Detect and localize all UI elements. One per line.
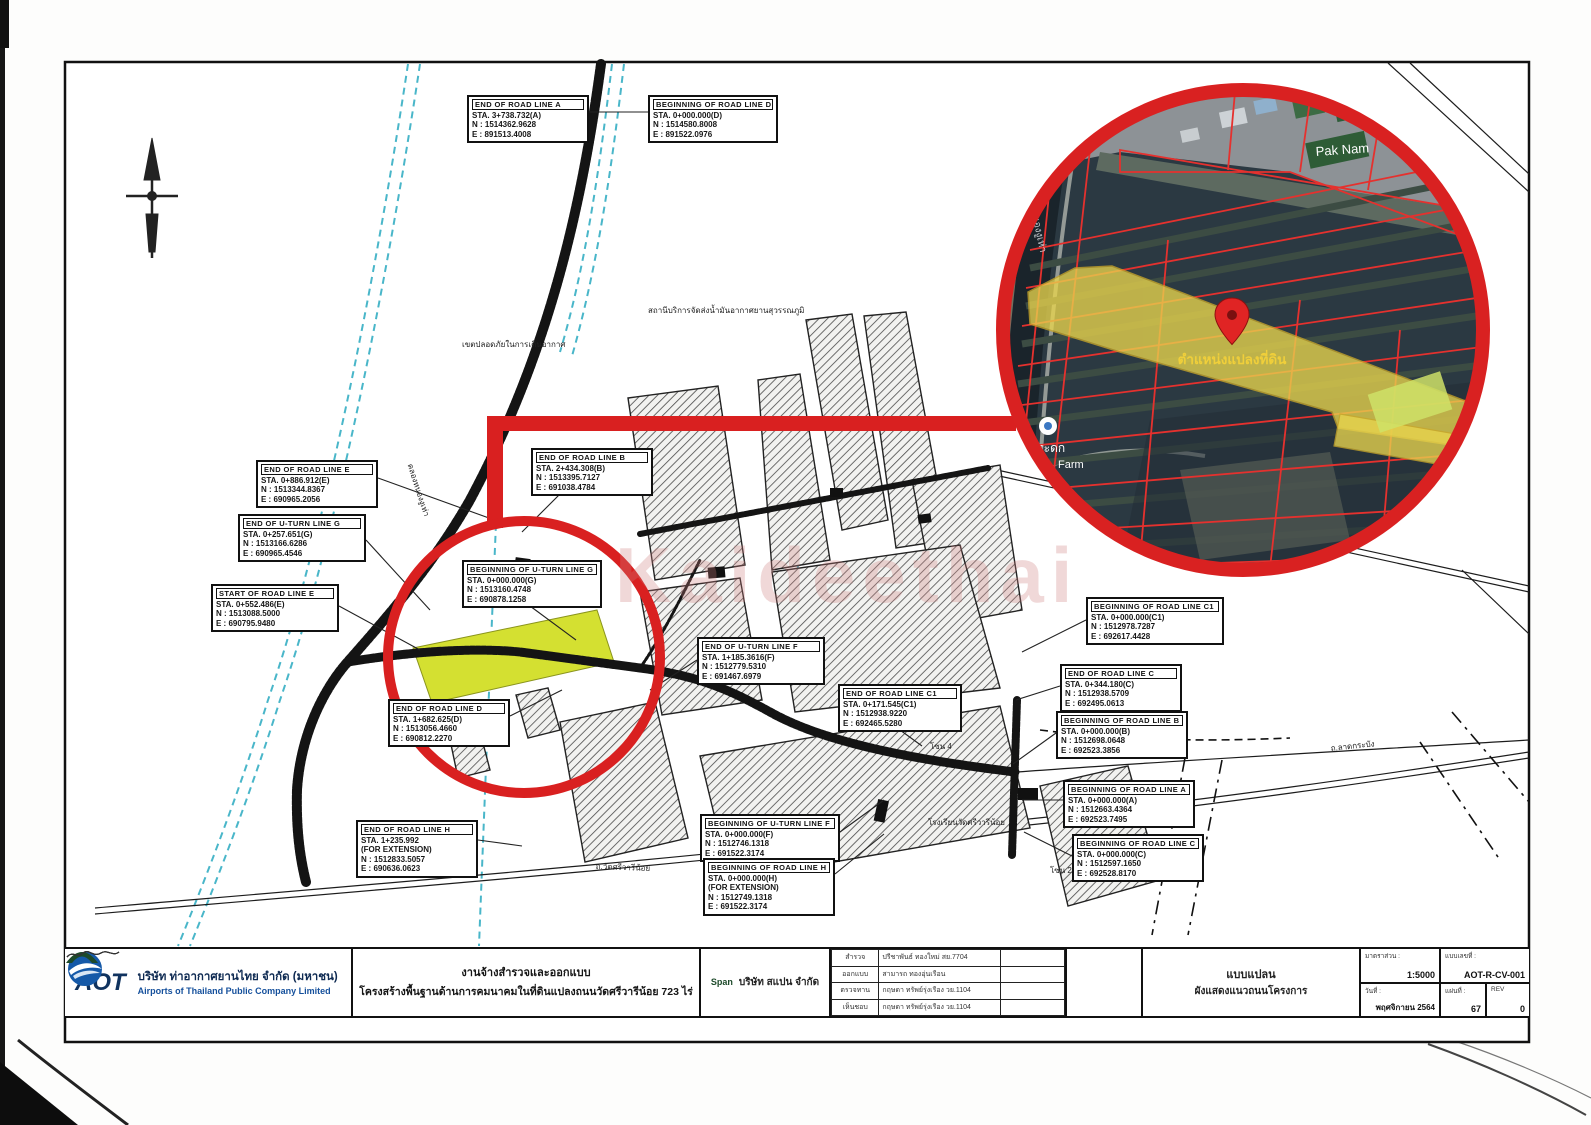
coord-label-title: END OF U-TURN LINE F — [702, 641, 820, 652]
map-annotation-4: โรงเรียนวัดศรีวารีน้อย — [928, 816, 1005, 829]
coord-label-line: STA. 0+886.912(E) — [261, 476, 373, 485]
drawing-info-grid: มาตราส่วน : 1:5000 แบบเลขที่ : AOT-R-CV-… — [1361, 949, 1529, 1016]
coord-label-1: BEGINNING OF ROAD LINE DSTA. 0+000.000(D… — [648, 95, 778, 143]
coord-label-line: N : 1512938.5709 — [1065, 689, 1177, 698]
coord-label-line: STA. 0+000.000(B) — [1061, 727, 1183, 736]
coord-label-line: E : 692495.0613 — [1065, 699, 1177, 708]
coord-label-0: END OF ROAD LINE ASTA. 3+738.732(A)N : 1… — [467, 95, 589, 143]
coord-label-line: STA. 0+000.000(A) — [1068, 796, 1190, 805]
coord-label-line: STA. 0+171.545(C1) — [843, 700, 957, 709]
coord-label-line: E : 691038.4784 — [536, 483, 648, 492]
coord-label-line: (FOR EXTENSION) — [361, 845, 473, 854]
coord-label-line: N : 1514580.8008 — [653, 120, 773, 129]
dwg-no-label: แบบเลขที่ : — [1445, 951, 1525, 961]
coord-label-line: N : 1514362.9628 — [472, 120, 584, 129]
date-value: พฤศจิกายน 2564 — [1365, 1001, 1435, 1014]
coord-label-title: BEGINNING OF ROAD LINE B — [1061, 715, 1183, 726]
coord-label-line: STA. 0+000.000(C1) — [1091, 613, 1219, 622]
coord-label-line: STA. 0+000.000(G) — [467, 576, 597, 585]
sheet-label: แผ่นที่ : — [1445, 986, 1481, 996]
coord-label-line: E : 691522.3174 — [705, 849, 835, 858]
consultant-cell: Span บริษัท สแปน จำกัด — [701, 949, 831, 1016]
coord-label-8: END OF ROAD LINE C1STA. 0+171.545(C1)N :… — [838, 684, 962, 732]
coord-label-title: START OF ROAD LINE E — [216, 588, 334, 599]
coord-label-17: END OF ROAD LINE HSTA. 1+235.992(FOR EXT… — [356, 820, 478, 878]
coord-label-title: BEGINNING OF ROAD LINE C — [1077, 838, 1199, 849]
coord-label-9: BEGINNING OF ROAD LINE C1STA. 0+000.000(… — [1086, 597, 1224, 645]
project-title-cell: งานจ้างสำรวจและออกแบบ โครงสร้างพื้นฐานด้… — [353, 949, 701, 1016]
scan-page-curl — [1428, 1044, 1586, 1115]
coord-label-2: END OF ROAD LINE ESTA. 0+886.912(E)N : 1… — [256, 460, 378, 508]
signature-table-cell: สำรวจปรีชาพันธ์ ทองใหม่ สย.7704ออกแบบสาม… — [831, 949, 1067, 1016]
coord-label-7: END OF U-TURN LINE FSTA. 1+185.3616(F)N … — [697, 637, 825, 685]
coord-label-14: END OF ROAD LINE DSTA. 1+682.625(D)N : 1… — [388, 699, 510, 747]
coord-label-10: END OF ROAD LINE CSTA. 0+344.180(C)N : 1… — [1060, 664, 1182, 712]
coord-label-line: N : 1513395.7127 — [536, 473, 648, 482]
coord-label-line: E : 690878.1258 — [467, 595, 597, 604]
company-name-th: บริษัท ท่าอากาศยานไทย จำกัด (มหาชน) — [138, 969, 338, 986]
coord-label-line: STA. 1+235.992 — [361, 836, 473, 845]
inset-pin-label: ตำแหน่งแปลงที่ดิน — [1178, 349, 1288, 367]
coord-label-13: BEGINNING OF ROAD LINE CSTA. 0+000.000(C… — [1072, 834, 1204, 882]
coord-label-line: E : 692465.5280 — [843, 719, 957, 728]
coord-label-line: STA. 0+000.000(F) — [705, 830, 835, 839]
drawing-title-line1: แบบแปลน — [1143, 966, 1359, 985]
signature-table: สำรวจปรีชาพันธ์ ทองใหม่ สย.7704ออกแบบสาม… — [831, 949, 1065, 1016]
coord-label-line: N : 1512779.5310 — [702, 662, 820, 671]
coord-label-line: N : 1512938.9220 — [843, 709, 957, 718]
coord-label-line: E : 690812.2270 — [393, 734, 505, 743]
title-block: AOT บริษัท ท่าอากาศยานไทย จำกัด (มหาชน) … — [65, 947, 1529, 1018]
project-title-line2: โครงสร้างพื้นฐานด้านการคมนาคมในที่ดินแปล… — [353, 983, 699, 1000]
coord-label-5: START OF ROAD LINE ESTA. 0+552.486(E)N :… — [211, 584, 339, 632]
map-annotation-3: ถ.วัดศรีวารีน้อย — [596, 860, 651, 875]
map-annotation-1: เขตปลอดภัยในการเดินอากาศ — [462, 338, 565, 351]
coord-label-line: STA. 2+434.308(B) — [536, 464, 648, 473]
signature-role: สำรวจ — [832, 950, 879, 967]
signature-scribble — [1000, 999, 1064, 1016]
coord-label-3: END OF ROAD LINE BSTA. 2+434.308(B)N : 1… — [531, 448, 653, 496]
coord-label-line: E : 692617.4428 — [1091, 632, 1219, 641]
drawing-title-line2: ผังแสดงแนวถนนโครงการ — [1143, 984, 1359, 999]
coord-label-line: STA. 1+682.625(D) — [393, 715, 505, 724]
coord-label-title: END OF ROAD LINE A — [472, 99, 584, 110]
coord-label-title: END OF ROAD LINE C1 — [843, 688, 957, 699]
coord-label-line: E : 692528.8170 — [1077, 869, 1199, 878]
coord-label-4: END OF U-TURN LINE GSTA. 0+257.651(G)N :… — [238, 514, 366, 562]
coord-label-title: BEGINNING OF ROAD LINE C1 — [1091, 601, 1219, 612]
signature-name: สามารถ ทองอุ่นเรือน — [879, 966, 1000, 983]
signature-role: เห็นชอบ — [832, 999, 879, 1016]
coord-label-line: STA. 0+552.486(E) — [216, 600, 334, 609]
rev-value: 0 — [1491, 1004, 1525, 1014]
coord-label-line: E : 692523.7495 — [1068, 815, 1190, 824]
coord-label-line: E : 891513.4008 — [472, 130, 584, 139]
coord-label-line: STA. 0+000.000(H) — [708, 874, 830, 883]
coord-label-title: BEGINNING OF ROAD LINE H — [708, 862, 830, 873]
company-name-en: Airports of Thailand Public Company Limi… — [138, 986, 338, 996]
coord-label-title: END OF ROAD LINE B — [536, 452, 648, 463]
coord-label-16: BEGINNING OF ROAD LINE HSTA. 0+000.000(H… — [703, 858, 835, 916]
coord-label-title: BEGINNING OF U-TURN LINE G — [467, 564, 597, 575]
coord-label-line: N : 1512978.7287 — [1091, 622, 1219, 631]
coord-label-line: STA. 0+000.000(D) — [653, 111, 773, 120]
coord-label-line: N : 1513344.8367 — [261, 485, 373, 494]
span-logo-text: Span — [711, 977, 733, 987]
project-title-line1: งานจ้างสำรวจและออกแบบ — [353, 965, 699, 983]
signature-scribble — [1000, 983, 1064, 1000]
coord-label-line: N : 1513166.6286 — [243, 539, 361, 548]
signature-row-0: สำรวจปรีชาพันธ์ ทองใหม่ สย.7704 — [832, 950, 1065, 967]
coord-label-line: E : 690965.2056 — [261, 495, 373, 504]
coord-label-line: E : 691467.6979 — [702, 672, 820, 681]
coord-label-title: BEGINNING OF U-TURN LINE F — [705, 818, 835, 829]
coord-label-line: E : 691522.3174 — [708, 902, 830, 911]
coord-label-title: BEGINNING OF ROAD LINE D — [653, 99, 773, 110]
coord-label-line: N : 1512663.4364 — [1068, 805, 1190, 814]
signature-row-2: ตรวจทานกฤษดา ทรัพย์รุ่งเรือง วย.1104 — [832, 983, 1065, 1000]
coord-label-line: N : 1512698.0648 — [1061, 736, 1183, 745]
coord-label-line: E : 690965.4546 — [243, 549, 361, 558]
signature-name: กฤษดา ทรัพย์รุ่งเรือง วย.1104 — [879, 983, 1000, 1000]
scale-label: มาตราส่วน : — [1365, 951, 1435, 961]
coord-label-line: STA. 0+344.180(C) — [1065, 680, 1177, 689]
inset-farm-label-2: Farm — [1058, 459, 1084, 471]
coord-label-line: E : 690636.0623 — [361, 864, 473, 873]
rev-label: REV — [1491, 986, 1525, 993]
coord-label-line: N : 1513056.4660 — [393, 724, 505, 733]
coord-label-line: N : 1513160.4748 — [467, 585, 597, 594]
signature-row-1: ออกแบบสามารถ ทองอุ่นเรือน — [832, 966, 1065, 983]
map-annotation-6: โซน 4 — [930, 740, 952, 753]
stamp-cell — [1067, 949, 1143, 1016]
coord-label-line: N : 1512597.1650 — [1077, 859, 1199, 868]
coord-label-title: END OF U-TURN LINE G — [243, 518, 361, 529]
signature-role: ตรวจทาน — [832, 983, 879, 1000]
scanned-drawing-sheet: คลองหนองงูเห่า Pak Nam ตำแหน่งแปลงที่ดิน… — [0, 0, 1591, 1125]
coord-label-line: E : 891522.0976 — [653, 130, 773, 139]
drawing-title-cell: แบบแปลน ผังแสดงแนวถนนโครงการ — [1143, 949, 1361, 1016]
coord-label-line: N : 1512746.1318 — [705, 839, 835, 848]
scale-value: 1:5000 — [1365, 970, 1435, 980]
consultant-name: บริษัท สแปน จำกัด — [739, 975, 819, 990]
date-label: วันที่ : — [1365, 986, 1435, 996]
scan-edge-left — [0, 0, 5, 1125]
coord-label-title: END OF ROAD LINE H — [361, 824, 473, 835]
coord-label-title: END OF ROAD LINE C — [1065, 668, 1177, 679]
signature-row-3: เห็นชอบกฤษดา ทรัพย์รุ่งเรือง วย.1104 — [832, 999, 1065, 1016]
coord-label-line: STA. 1+185.3616(F) — [702, 653, 820, 662]
signature-scribble — [1000, 966, 1064, 983]
coord-label-title: END OF ROAD LINE D — [393, 703, 505, 714]
signature-name: กฤษดา ทรัพย์รุ่งเรือง วย.1104 — [879, 999, 1000, 1016]
signature-scribble — [1000, 950, 1064, 967]
coord-label-line: N : 1512833.5057 — [361, 855, 473, 864]
coord-label-line: E : 690795.9480 — [216, 619, 334, 628]
coord-label-line: (FOR EXTENSION) — [708, 883, 830, 892]
coord-label-line: STA. 0+000.000(C) — [1077, 850, 1199, 859]
coord-label-15: BEGINNING OF U-TURN LINE FSTA. 0+000.000… — [700, 814, 840, 862]
sheet-value: 67 — [1445, 1004, 1481, 1014]
coord-label-title: END OF ROAD LINE E — [261, 464, 373, 475]
coord-label-title: BEGINNING OF ROAD LINE A — [1068, 784, 1190, 795]
coord-label-11: BEGINNING OF ROAD LINE BSTA. 0+000.000(B… — [1056, 711, 1188, 759]
signature-name: ปรีชาพันธ์ ทองใหม่ สย.7704 — [879, 950, 1000, 967]
map-annotation-0: สถานีบริการจัดส่งน้ำมันอากาศยานสุวรรณภูม… — [648, 304, 804, 317]
coord-label-line: N : 1512749.1318 — [708, 893, 830, 902]
farm-poi-icon — [1039, 417, 1057, 435]
coord-label-line: N : 1513088.5000 — [216, 609, 334, 618]
coord-label-line: E : 692523.3856 — [1061, 746, 1183, 755]
coord-label-12: BEGINNING OF ROAD LINE ASTA. 0+000.000(A… — [1063, 780, 1195, 828]
coord-label-line: STA. 3+738.732(A) — [472, 111, 584, 120]
coord-label-line: STA. 0+257.651(G) — [243, 530, 361, 539]
coord-label-6: BEGINNING OF U-TURN LINE GSTA. 0+000.000… — [462, 560, 602, 608]
scan-artifact-bottom-left — [0, 1062, 78, 1125]
dwg-no-value: AOT-R-CV-001 — [1445, 970, 1525, 980]
signature-role: ออกแบบ — [832, 966, 879, 983]
